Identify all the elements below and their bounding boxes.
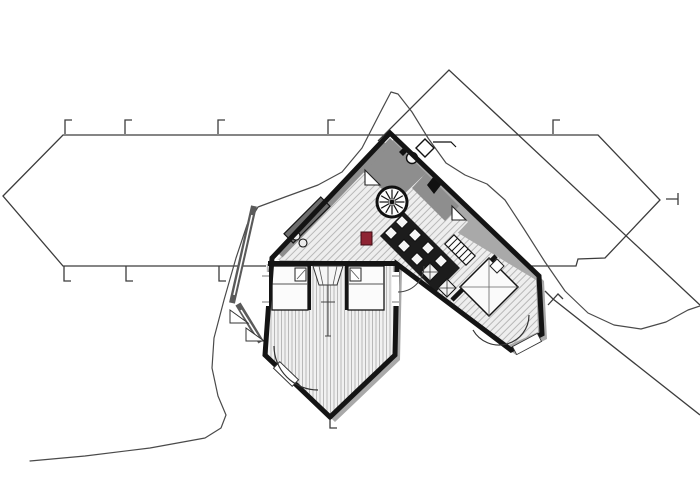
window-gap-right xyxy=(392,272,399,306)
grid-tick-east xyxy=(666,193,678,205)
fireplace xyxy=(361,232,372,245)
sink-basin-2 xyxy=(299,239,307,247)
grid-ticks-bottom xyxy=(64,266,226,281)
window-gap-left xyxy=(262,272,269,306)
spiral-stair-hub xyxy=(390,200,395,205)
deck-outline-lower xyxy=(545,291,700,415)
grid-ticks-top xyxy=(65,120,560,134)
vent-line xyxy=(433,142,456,147)
bedroom-top-wall xyxy=(268,261,397,266)
plan-root xyxy=(3,70,700,461)
floor-plan-svg xyxy=(0,0,700,500)
floor-plan-page xyxy=(0,0,700,500)
